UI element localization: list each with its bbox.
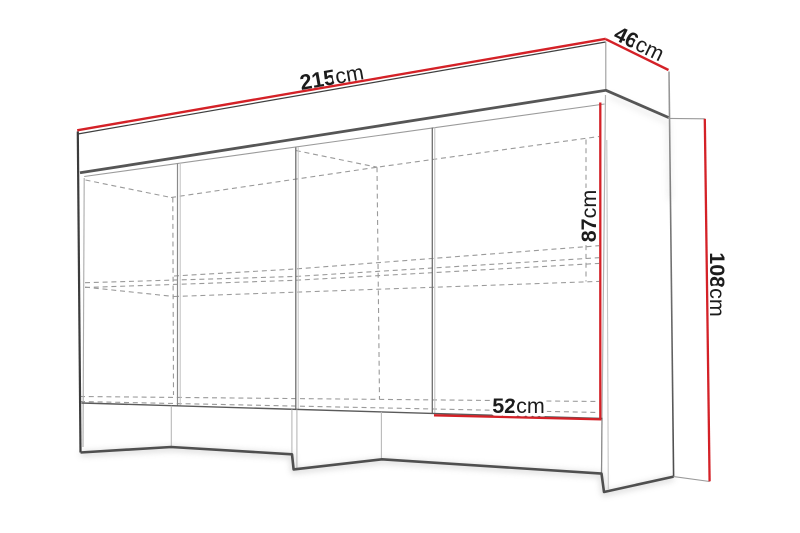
svg-text:52cm: 52cm [492, 394, 545, 418]
svg-text:87cm: 87cm [577, 190, 601, 243]
